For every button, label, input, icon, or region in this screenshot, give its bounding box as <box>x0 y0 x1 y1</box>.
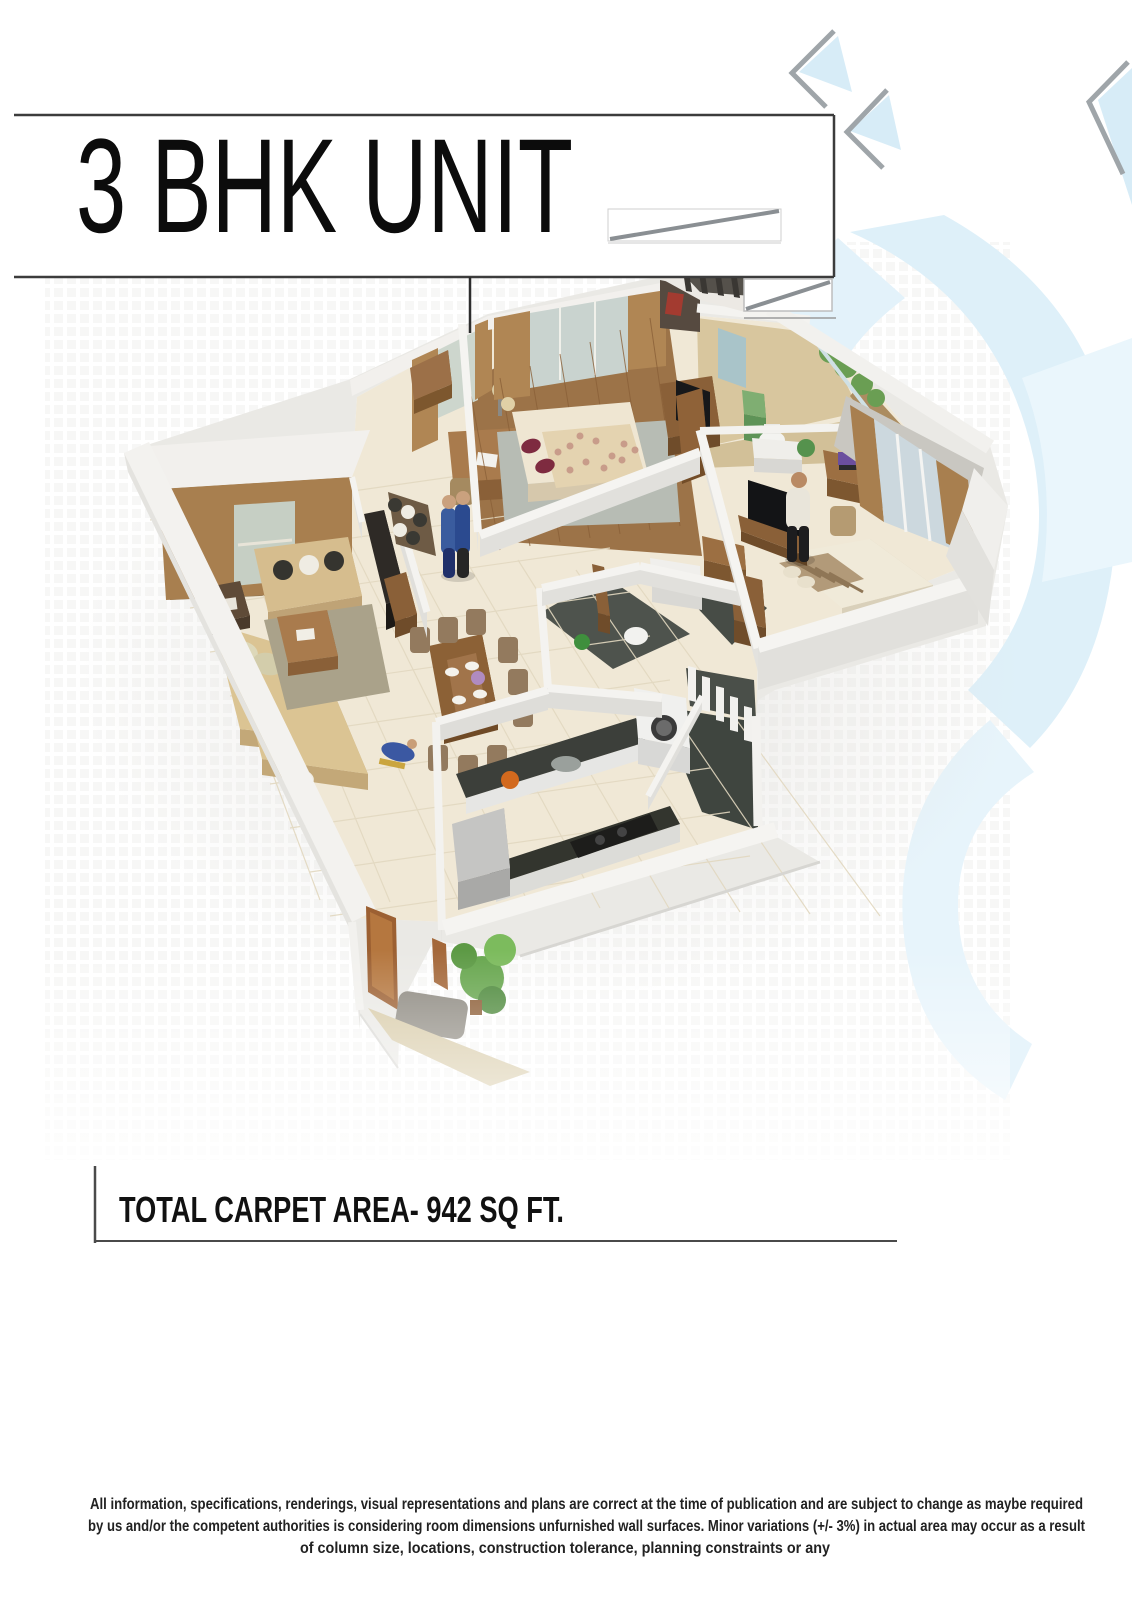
svg-text:TOTAL CARPET AREA- 942 SQ FT.: TOTAL CARPET AREA- 942 SQ FT. <box>119 1189 564 1230</box>
svg-text:of column size, locations, con: of column size, locations, construction … <box>300 1540 830 1557</box>
svg-text:All information, specification: All information, specifications, renderi… <box>90 1496 1083 1513</box>
svg-text:by us and/or the competent au: by us and/or the competent authorities i… <box>88 1518 1085 1535</box>
svg-text:3 BHK UNIT: 3 BHK UNIT <box>76 112 573 261</box>
